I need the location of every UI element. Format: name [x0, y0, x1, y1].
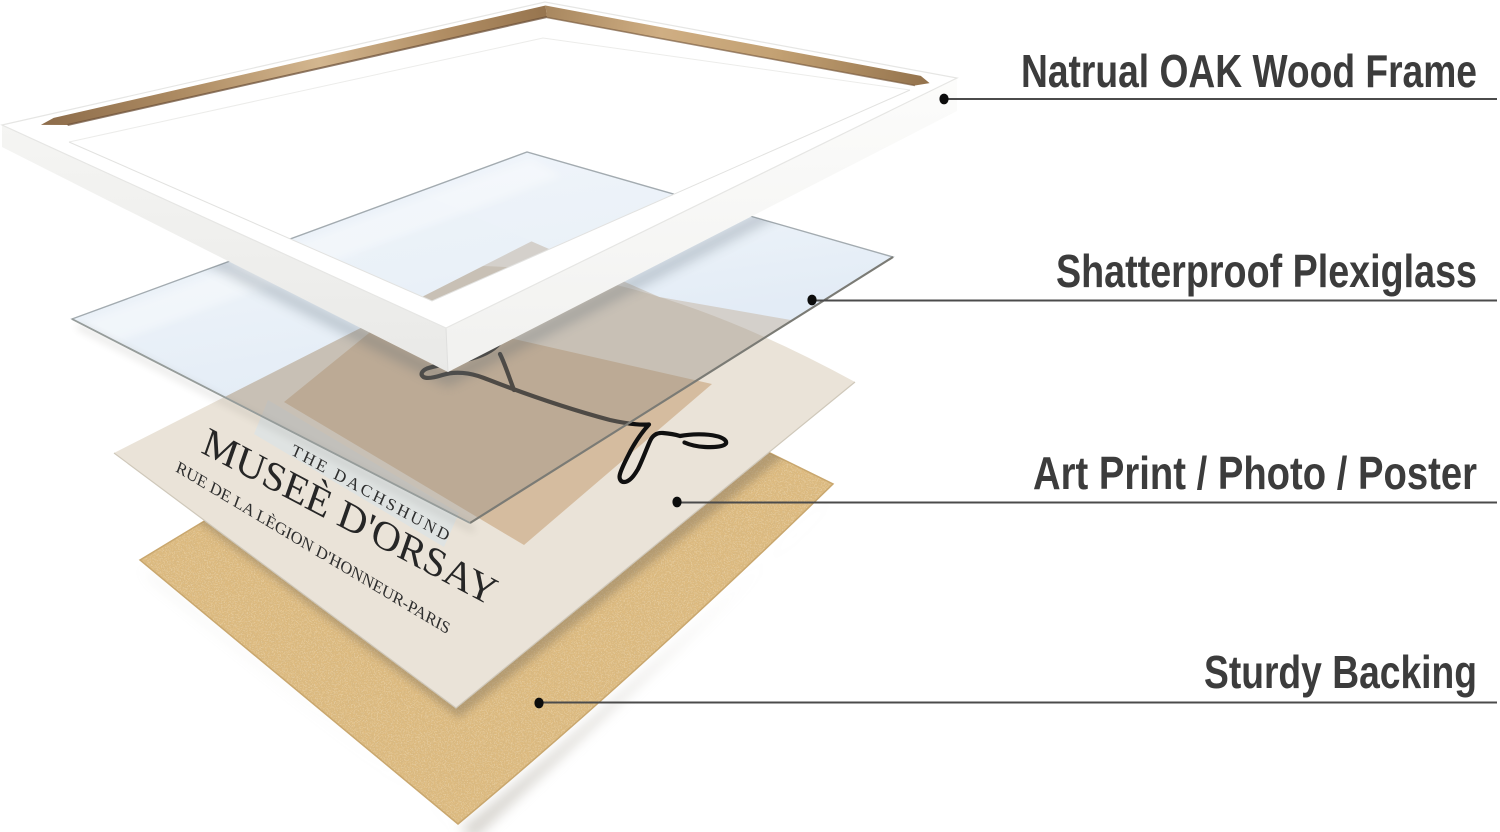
- svg-text:Natrual OAK Wood Frame: Natrual OAK Wood Frame: [1021, 45, 1477, 97]
- svg-text:Art Print / Photo / Poster: Art Print / Photo / Poster: [1033, 447, 1477, 499]
- svg-text:Sturdy Backing: Sturdy Backing: [1204, 646, 1477, 698]
- svg-text:Shatterproof Plexiglass: Shatterproof Plexiglass: [1056, 245, 1477, 297]
